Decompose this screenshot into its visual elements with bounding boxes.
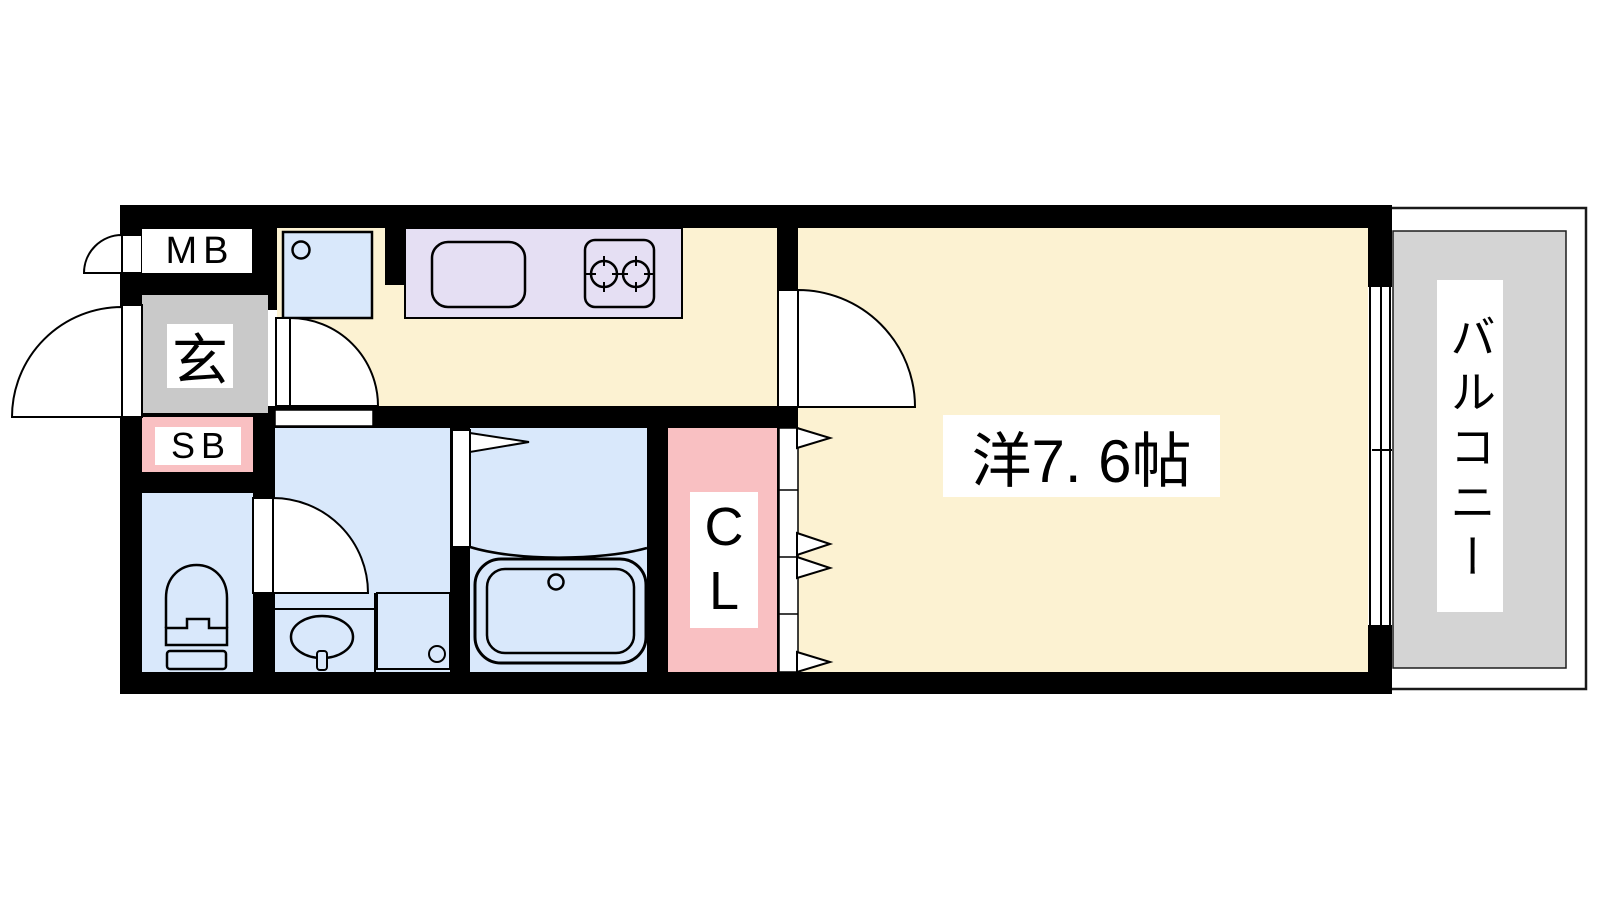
bath-door-leaf	[452, 430, 470, 547]
hall-door-leaf	[276, 318, 290, 406]
balcony-window	[1368, 287, 1392, 625]
main-room-door-leaf	[778, 290, 798, 407]
balcony-label: バルコニー	[1437, 280, 1503, 612]
closet-label: C L	[690, 492, 758, 628]
main-room-label: 洋7. 6帖	[943, 415, 1220, 497]
floor-plan: MB 玄 SB C L 洋7. 6帖 バルコニー	[0, 0, 1600, 900]
entrance-label: 玄	[167, 324, 233, 388]
washing-machine-space	[283, 232, 372, 318]
meter-box-door-arc	[84, 235, 122, 273]
toilet-door-leaf	[253, 498, 273, 593]
meter-box-door	[84, 235, 142, 273]
basin-tap-icon	[317, 651, 327, 670]
bathroom-floor	[470, 428, 647, 672]
meter-box-door-leaf	[122, 235, 142, 273]
washroom-sliding-door	[275, 410, 373, 426]
meter-box-label: MB	[142, 229, 252, 273]
entrance-door-arc	[12, 307, 122, 417]
shoe-box-label: SB	[155, 427, 241, 465]
entrance-door-leaf	[122, 305, 142, 417]
entrance-door	[12, 305, 142, 417]
wall-stub-kitchen	[385, 205, 405, 285]
closet-door-strip	[779, 428, 798, 672]
